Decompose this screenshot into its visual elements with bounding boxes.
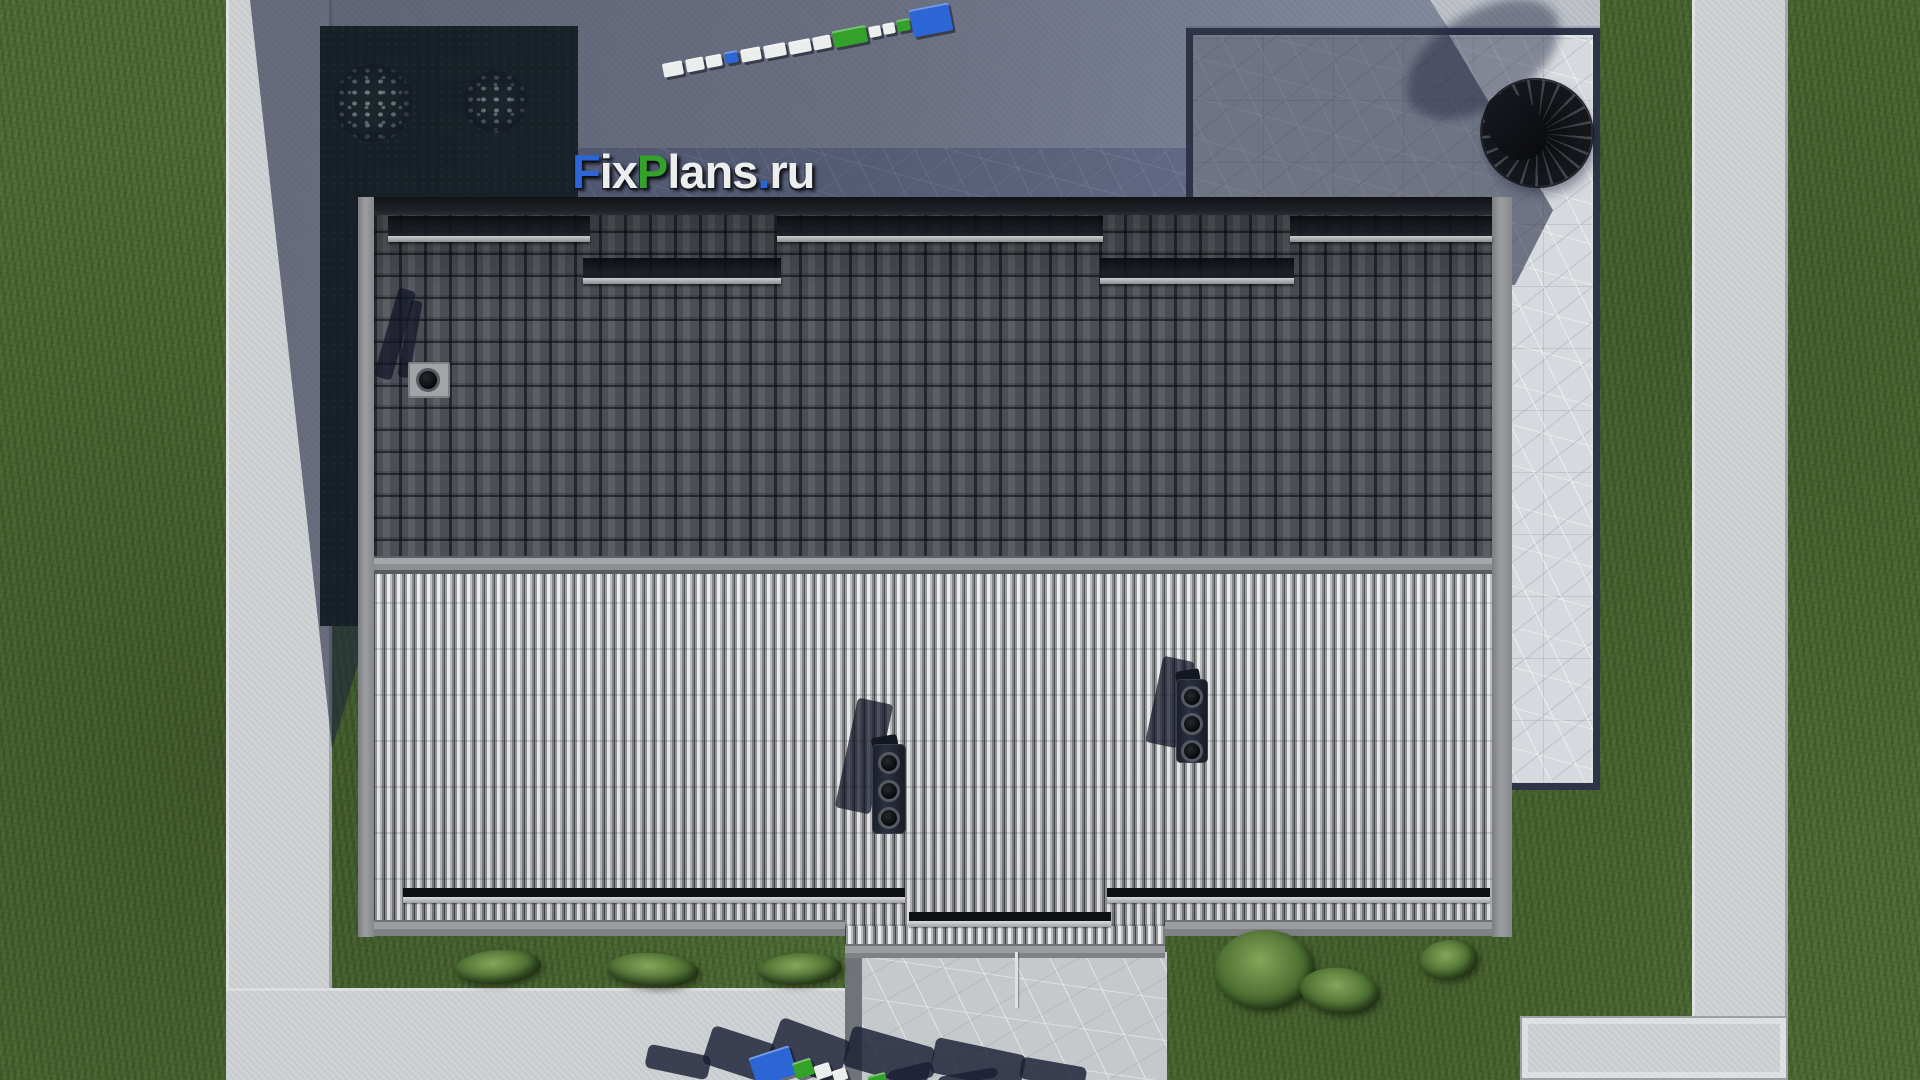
bottom-right-pad (1520, 1016, 1788, 1080)
logo-3d-block (882, 22, 896, 35)
metal-roof-slope (374, 574, 1492, 926)
snowguard-band (1107, 888, 1490, 897)
site-plan-render: FixPlans.ru (0, 0, 1920, 1080)
shrub (454, 947, 542, 987)
chimney-vent (878, 752, 900, 774)
shrub (757, 951, 843, 987)
shrub (1418, 938, 1479, 983)
logo-3d-block (868, 25, 882, 38)
roof-ridge-eave (374, 197, 1492, 215)
chimney-vent (1181, 713, 1203, 735)
fixplans-watermark: FixPlans.ru (572, 144, 814, 199)
snowguard-bar (777, 236, 1103, 242)
snowguard-band (403, 888, 905, 897)
roof-eave-center (845, 944, 1165, 958)
watermark-letters-lans: lans (667, 145, 757, 198)
chimney-vent (878, 807, 900, 829)
downspout (1015, 952, 1018, 1008)
chimney-vent (878, 780, 900, 802)
snowguard-band (777, 216, 1103, 236)
flowering-bush (463, 71, 527, 133)
snowguard-band (909, 912, 1111, 921)
right-walkway (1692, 0, 1788, 1020)
chimney-vent (416, 368, 440, 392)
snowguard-band (583, 258, 781, 278)
roof-eave-left (374, 920, 845, 936)
logo-3d-block (724, 50, 739, 64)
chimney-vent (1181, 740, 1203, 762)
roof-eave-right (1165, 920, 1492, 936)
watermark-letter-f: F (572, 145, 600, 198)
watermark-letters-ru: ru (769, 145, 814, 198)
watermark-dot: . (757, 145, 769, 198)
snowguard-band (1290, 216, 1492, 236)
snowguard-band (1100, 258, 1294, 278)
logo-3d-block (896, 18, 911, 32)
roof-fascia-left (358, 197, 374, 937)
snowguard-bar (1290, 236, 1492, 242)
watermark-letters-ix: ix (600, 145, 637, 198)
snowguard-band (388, 216, 590, 236)
left-walkway (226, 0, 332, 1080)
snowguard-bar (1100, 278, 1294, 284)
roof-ridge-cap (374, 556, 1492, 574)
shrub (606, 951, 700, 990)
snowguard-bar (583, 278, 781, 284)
shrub (1298, 964, 1382, 1018)
snowguard-bar (1107, 897, 1490, 903)
watermark-letter-p: P (637, 145, 667, 198)
shrub (1215, 930, 1315, 1010)
dark-tile-roof-slope (374, 215, 1492, 563)
chimney-vent (1181, 686, 1203, 708)
roof-fascia-right (1492, 197, 1512, 937)
snowguard-bar (388, 236, 590, 242)
snowguard-bar (909, 921, 1111, 927)
snowguard-bar (403, 897, 905, 903)
flowering-bush (334, 64, 412, 142)
